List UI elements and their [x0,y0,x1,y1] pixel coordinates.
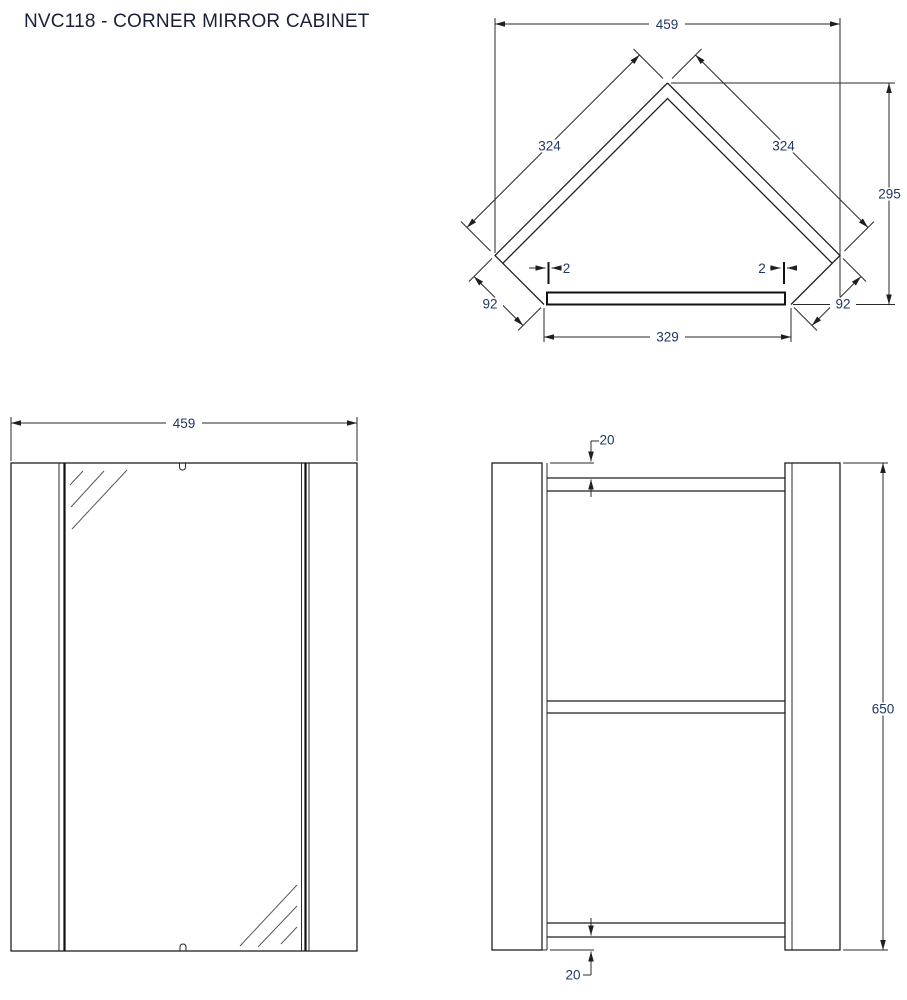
dim-label-front-width: 329 [656,330,679,345]
front-view: 459 [11,416,357,951]
dim-label-gap-left: 2 [563,261,571,276]
dim-label-depth: 295 [878,187,901,202]
door-gap-lines [59,463,309,951]
label-leader [583,962,591,975]
drawing-sheet: NVC118 - CORNER MIRROR CABINET 459 [0,0,907,1000]
dim-label-bottom-recess: 20 [565,968,580,983]
dim-gap-left: 2 [529,261,570,284]
dim-label-front-overall-width: 459 [173,416,196,431]
dim-label-top-recess: 20 [599,433,614,448]
dim-label-left-side: 324 [538,139,561,154]
plan-view: 459 324 324 295 [461,17,906,345]
shelves [547,478,785,937]
mirror-door-plan [547,293,785,305]
dim-left-side: 324 [461,49,663,251]
dim-depth: 295 [671,83,906,305]
dim-top-recess: 20 [550,433,615,498]
dim-label-height: 650 [872,702,895,717]
left-side-panel [492,463,542,950]
technical-drawing: 459 324 324 295 [0,0,907,1000]
dim-front-width: 329 [544,308,791,345]
extension-lines [469,259,541,331]
door-edge-lines [65,463,306,951]
dim-bottom-recess: 20 [550,918,594,983]
dim-label-left-return: 92 [482,297,497,312]
dim-label-right-side: 324 [772,139,795,154]
dim-label-plan-width: 459 [656,17,679,32]
dim-gap-right: 2 [758,261,797,284]
dim-height: 650 [843,463,900,950]
right-side-panel [785,463,840,950]
bottom-catch-notch [180,944,186,951]
dim-right-side: 324 [672,49,874,251]
dim-label-gap-right: 2 [758,261,766,276]
plan-inner-walls [503,99,832,264]
dim-overall-width-front: 459 [11,416,357,461]
extension-lines [495,18,840,298]
dim-label-right-return: 92 [835,297,850,312]
dim-overall-width-plan: 459 [495,17,840,298]
top-catch-notch [180,463,186,470]
plan-outline [495,83,840,305]
mirror-glass-hatch [70,470,297,947]
dim-right-return: 92 [794,259,866,331]
side-view: 650 20 20 [492,433,900,983]
extension-lines [794,259,866,331]
dim-left-return: 92 [469,259,541,331]
